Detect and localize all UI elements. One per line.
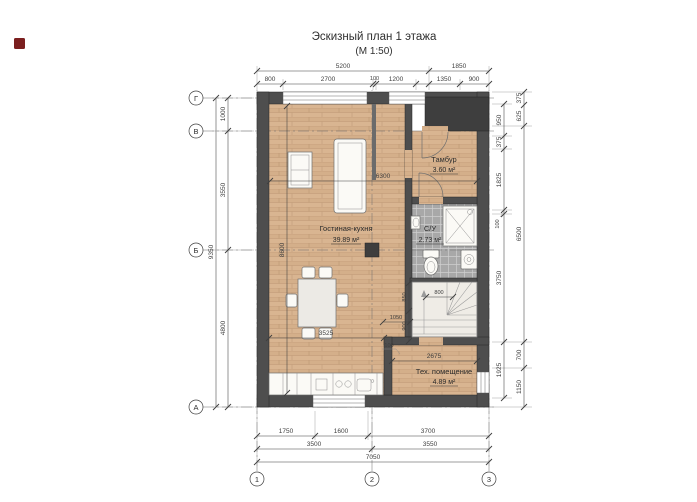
room-label-living: Гостиная-кухня — [319, 224, 372, 233]
dim-label: 8600 — [279, 242, 286, 257]
dim-label: 3700 — [421, 428, 436, 435]
dim-label: 100 — [495, 219, 501, 228]
dim-label: 4800 — [220, 320, 227, 335]
floor-plan-canvas: Эскизный план 1 этажа (М 1:50) — [0, 0, 697, 502]
structural-column — [365, 243, 379, 257]
toilet-icon — [423, 250, 439, 275]
axis-label: 1 — [255, 475, 259, 484]
partition-wc-stairs — [410, 278, 477, 282]
dim-label: 3750 — [496, 270, 503, 285]
dim-label: 1050 — [390, 315, 402, 321]
kitchen-counter — [269, 373, 383, 395]
window-bottom — [313, 395, 365, 407]
staircase-floor — [412, 282, 477, 337]
chair — [302, 267, 315, 278]
partition-stub-axis2 — [372, 104, 376, 180]
dim-label: 3550 — [423, 441, 438, 448]
dim-label: 6500 — [516, 226, 523, 241]
dim-label: 1850 — [452, 63, 467, 70]
dim-label: 9350 — [208, 244, 215, 259]
dim-label: 100 — [370, 76, 379, 82]
page-subtitle-scale: (М 1:50) — [355, 46, 392, 57]
dim-label: 1350 — [437, 76, 452, 83]
axis-label: В — [193, 127, 198, 136]
dim-label: 1150 — [516, 380, 523, 394]
wall-bottom — [257, 395, 489, 407]
room-area-tambur: 3.60 м² — [433, 167, 456, 174]
chair — [286, 294, 297, 307]
washbasin-icon — [411, 216, 420, 229]
room-area-tech: 4.89 м² — [433, 379, 456, 386]
dim-label: 950 — [496, 114, 503, 125]
dim-label: 1825 — [496, 172, 503, 187]
dim-label: 1925 — [496, 362, 503, 377]
window-top-2 — [389, 92, 425, 104]
dim-label: 375 — [496, 136, 503, 147]
dim-label: 3525 — [319, 330, 334, 337]
room-label-wc: С/У — [424, 224, 437, 233]
floor-plan-svg: Эскизный план 1 этажа (М 1:50) — [0, 0, 697, 502]
dim-label: 3500 — [307, 441, 322, 448]
dim-label: 700 — [516, 349, 523, 360]
dim-label: 900 — [402, 321, 408, 330]
dim-label: 3550 — [220, 182, 227, 197]
dim-label: 625 — [516, 110, 523, 121]
dim-label: 800 — [265, 76, 276, 83]
chair — [337, 294, 348, 307]
axis-label: Б — [194, 246, 199, 255]
dim-label: 2700 — [321, 76, 336, 83]
dim-label: 7050 — [366, 454, 381, 461]
opening-tech-door — [419, 337, 443, 345]
dim-label: 800 — [434, 290, 443, 296]
room-area-living: 39.89 м² — [333, 237, 360, 244]
shower-cabin-icon — [443, 206, 477, 246]
axis-label: Г — [194, 94, 198, 103]
chair — [302, 328, 315, 339]
washing-machine-icon — [461, 250, 477, 269]
opening-living-tambur — [405, 150, 412, 178]
chair — [319, 267, 332, 278]
window-right-tech — [477, 372, 489, 393]
opening-tambur-hall — [419, 197, 443, 204]
dim-label: 375 — [516, 92, 523, 103]
entrance-porch-block — [425, 97, 489, 131]
window-top-1 — [283, 92, 367, 104]
dim-label: 2675 — [427, 353, 442, 360]
dim-label: 1600 — [334, 428, 349, 435]
dim-label: 900 — [469, 76, 480, 83]
dim-label: 100 — [384, 343, 393, 349]
wall-left — [257, 92, 269, 407]
axis-label: А — [193, 403, 198, 412]
room-label-tech: Тех. помещение — [416, 367, 472, 376]
dim-label: 5200 — [336, 63, 351, 70]
room-label-tambur: Тамбур — [431, 155, 456, 164]
opening-entrance-door — [422, 126, 448, 132]
dim-label: 1200 — [389, 76, 404, 83]
dim-label: 6300 — [376, 173, 391, 180]
corner-marker-icon — [14, 38, 25, 49]
axis-label: 3 — [487, 475, 491, 484]
axis-label: 2 — [370, 475, 374, 484]
dining-table — [298, 279, 336, 327]
dim-label: 1750 — [279, 428, 294, 435]
kitchen-island — [334, 139, 366, 213]
page-title: Эскизный план 1 этажа — [312, 31, 437, 43]
dim-label: 850 — [402, 292, 408, 301]
room-area-wc: 2.73 м² — [419, 237, 442, 244]
dim-label: 1000 — [220, 106, 227, 121]
